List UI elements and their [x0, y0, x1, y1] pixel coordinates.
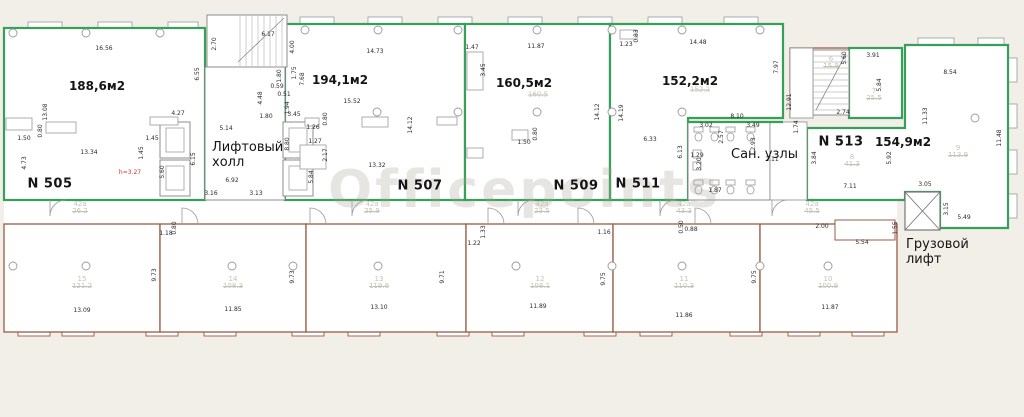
dimension-label: 0.80: [172, 221, 178, 234]
dimension-label: 1.23: [619, 42, 632, 48]
dimension-label: 1.16: [597, 230, 610, 236]
dimension-label: 3.15: [944, 202, 950, 215]
dimension-label: 7.97: [774, 60, 780, 73]
dimension-label: 14.48: [689, 40, 706, 46]
dimension-label: 1.27: [308, 139, 321, 145]
dimension-label: 15.52: [343, 99, 360, 105]
dimension-label: 6.13: [678, 145, 684, 158]
dimension-label: 6.33: [643, 137, 656, 143]
dimension-label: 11.48: [997, 129, 1003, 146]
dimension-label: 5.60: [160, 165, 166, 178]
lift-hall-label: Лифтовыйхолл: [212, 140, 283, 170]
dimension-label: 9.73: [290, 270, 296, 283]
room-number: N 507: [397, 179, 442, 194]
dimension-label: 0.80: [323, 112, 329, 125]
dimension-label: 3.02: [699, 123, 712, 129]
dimension-label: 1.55: [893, 221, 899, 234]
cadastral-label: 42а43.3: [676, 201, 692, 215]
dimension-label: 14.73: [366, 49, 383, 55]
dimension-label: 4.73: [22, 156, 28, 169]
cadastral-label: 160.5: [528, 92, 548, 99]
dimension-label: 5.60: [842, 51, 848, 64]
cadastral-label: 14108.3: [223, 276, 243, 290]
dimension-label: 1.47: [465, 45, 478, 51]
room-number: N 513: [818, 135, 863, 150]
dimension-label: 1.45: [145, 136, 158, 142]
cadastral-label: 15121.2: [72, 276, 92, 290]
dimension-label: 2.70: [212, 37, 218, 50]
dimension-label: 0.88: [684, 227, 697, 233]
freight-lift-label: Грузовойлифт: [906, 237, 969, 267]
room-number: N 511: [615, 177, 660, 192]
dimension-label: 1.45: [139, 146, 145, 159]
dimension-label: 0.80: [533, 127, 539, 140]
room-number: N 509: [553, 179, 598, 194]
dimension-label: 5.54: [855, 240, 868, 246]
dimension-label: 9.71: [440, 270, 446, 283]
dimension-label: 1.33: [481, 225, 487, 238]
dimension-label: 6.17: [261, 32, 274, 38]
cadastral-label: 42а26.2: [72, 201, 88, 215]
dimension-label: 8.54: [943, 70, 956, 76]
floor-plan: Officepoints 16.566.5513.084.271.500.801…: [0, 0, 1024, 417]
dimension-label: 13.34: [80, 150, 97, 156]
dimension-label: 2.57: [719, 130, 725, 143]
room-area: 154,9м2: [875, 135, 931, 149]
cadastral-label: 725.5: [866, 88, 882, 102]
dimension-label: 2.00: [815, 224, 828, 230]
dimension-label: 5.49: [957, 215, 970, 221]
cadastral-label: 11110.3: [674, 276, 694, 290]
dimension-label: 5.92: [887, 151, 893, 164]
dimension-label: 12.91: [787, 93, 793, 110]
dimension-label: 8.10: [730, 114, 743, 120]
dimension-label: 2.74: [836, 110, 849, 116]
cadastral-label: 13119.6: [369, 276, 389, 290]
cadastral-label: 841.3: [844, 154, 860, 168]
cadastral-label: 12108.1: [530, 276, 550, 290]
dimension-label: 11.85: [224, 307, 241, 313]
dimension-label: 0.83: [634, 29, 640, 42]
room-area: 194,1м2: [312, 73, 368, 87]
dimension-label: 13.32: [368, 163, 385, 169]
dimension-label: 3.13: [249, 191, 262, 197]
dimension-label: 3.84: [812, 151, 818, 164]
dimension-label: 1.50: [17, 136, 30, 142]
dimension-label: 1.29: [690, 153, 703, 159]
dimension-label: 3.45: [481, 63, 487, 76]
cadastral-label: 615.9: [823, 56, 839, 70]
dimension-label: 5.84: [309, 170, 315, 183]
dimension-label: 11.87: [527, 44, 544, 50]
cadastral-label: 42а23.5: [534, 201, 550, 215]
dimension-label: 7.68: [300, 72, 306, 85]
dimension-label: 4.00: [290, 40, 296, 53]
dimension-label: 1.87: [708, 188, 721, 194]
dimension-label: 11.86: [675, 313, 692, 319]
dimension-label: 13.10: [370, 305, 387, 311]
dimension-label: 0.59: [270, 84, 283, 90]
dimension-label: 13.08: [43, 103, 49, 120]
dimension-label: 4.48: [258, 91, 264, 104]
floor-plan-annotations: Officepoints 16.566.5513.084.271.500.801…: [0, 0, 1024, 417]
cadastral-label: 152.2: [690, 87, 710, 94]
dimension-label: 1.22: [467, 241, 480, 247]
dimension-label: 14.19: [619, 104, 625, 121]
dimension-label: 3.20: [697, 157, 703, 170]
dimension-label: 5.14: [219, 126, 232, 132]
dimension-label: 3.49: [746, 123, 759, 129]
dimension-label: 1.80: [259, 114, 272, 120]
dimension-label: 7.11: [843, 184, 856, 190]
dimension-label: 3.45: [287, 112, 300, 118]
dimension-label: 11.87: [821, 305, 838, 311]
dimension-label: 3.05: [918, 182, 931, 188]
dimension-label: 11.89: [529, 304, 546, 310]
dimension-label: h=3.27: [119, 170, 141, 176]
dimension-label: 9.75: [601, 272, 607, 285]
dimension-label: 16.56: [95, 46, 112, 52]
dimension-label: 9.75: [752, 270, 758, 283]
dimension-label: 6.55: [195, 67, 201, 80]
dimension-label: 2.17: [323, 148, 329, 161]
dimension-label: 4.27: [171, 111, 184, 117]
dimension-label: 1.26: [306, 125, 319, 131]
dimension-label: 6.92: [225, 178, 238, 184]
cadastral-label: 42а25.9: [364, 201, 380, 215]
cadastral-label: 42а45.5: [804, 201, 820, 215]
room-area: 188,6м2: [69, 79, 125, 93]
room-area: 160,5м2: [496, 76, 552, 90]
dimension-label: 3.16: [204, 191, 217, 197]
dimension-label: 9.73: [152, 268, 158, 281]
dimension-label: 0.80: [38, 124, 44, 137]
dimension-label: 6.15: [191, 152, 197, 165]
dimension-label: 3.91: [866, 53, 879, 59]
dimension-label: 1.80: [277, 69, 283, 82]
dimension-label: 13.09: [73, 308, 90, 314]
dimension-label: 0.51: [277, 92, 290, 98]
dimension-label: 1.75: [292, 66, 298, 79]
dimension-label: 8.80: [285, 137, 291, 150]
dimension-label: 11.33: [923, 107, 929, 124]
dimension-label: 14.12: [595, 103, 601, 120]
dimension-label: 1.74: [794, 120, 800, 133]
watermark: Officepoints: [328, 160, 721, 220]
cadastral-label: 9113.9: [948, 145, 968, 159]
room-number: N 505: [27, 177, 72, 192]
dimension-label: 1.50: [517, 140, 530, 146]
dimension-label: 14.12: [408, 116, 414, 133]
san-units-label: Сан. узлы: [731, 147, 798, 162]
cadastral-label: 10100.9: [818, 276, 838, 290]
